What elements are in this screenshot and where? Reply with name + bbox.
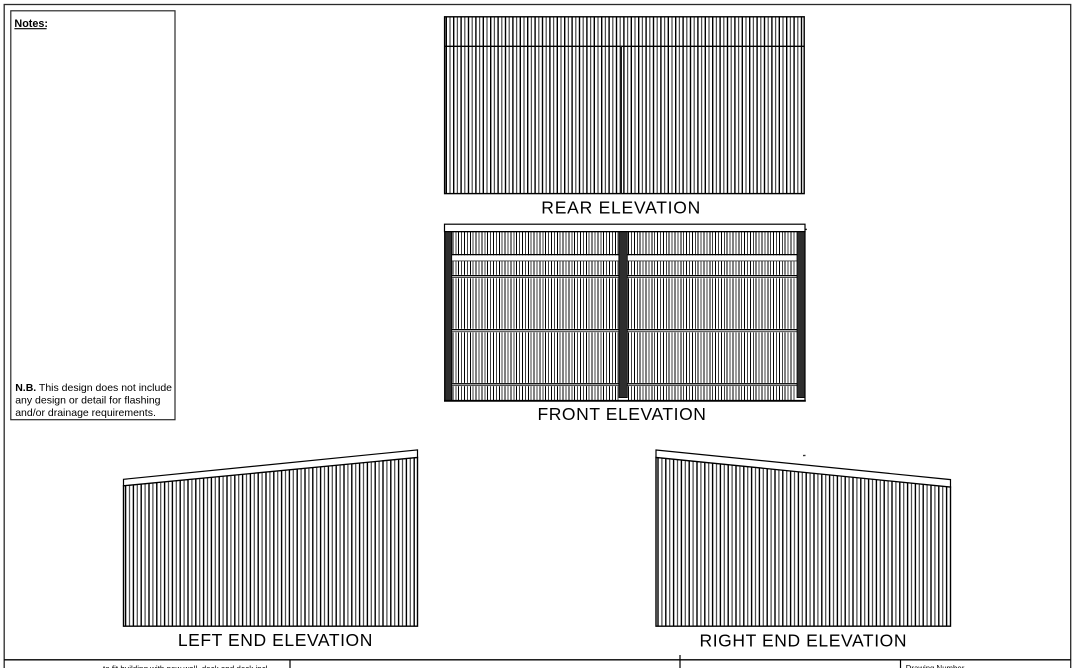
svg-text:LEFT END ELEVATION: LEFT END ELEVATION <box>178 630 373 650</box>
svg-text:Drawing Number: Drawing Number <box>906 664 965 668</box>
svg-text:to fit building with new wall,: to fit building with new wall, deck and … <box>103 665 270 668</box>
svg-text:and/or drainage requirements.: and/or drainage requirements. <box>15 407 156 419</box>
svg-text:any design or detail for flash: any design or detail for flashing <box>15 394 160 406</box>
svg-text:RIGHT END ELEVATION: RIGHT END ELEVATION <box>700 630 907 650</box>
svg-text:REAR ELEVATION: REAR ELEVATION <box>541 198 700 218</box>
svg-text:FRONT ELEVATION: FRONT ELEVATION <box>537 404 706 424</box>
svg-text:N.B. This design does not incl: N.B. This design does not include <box>15 382 172 394</box>
